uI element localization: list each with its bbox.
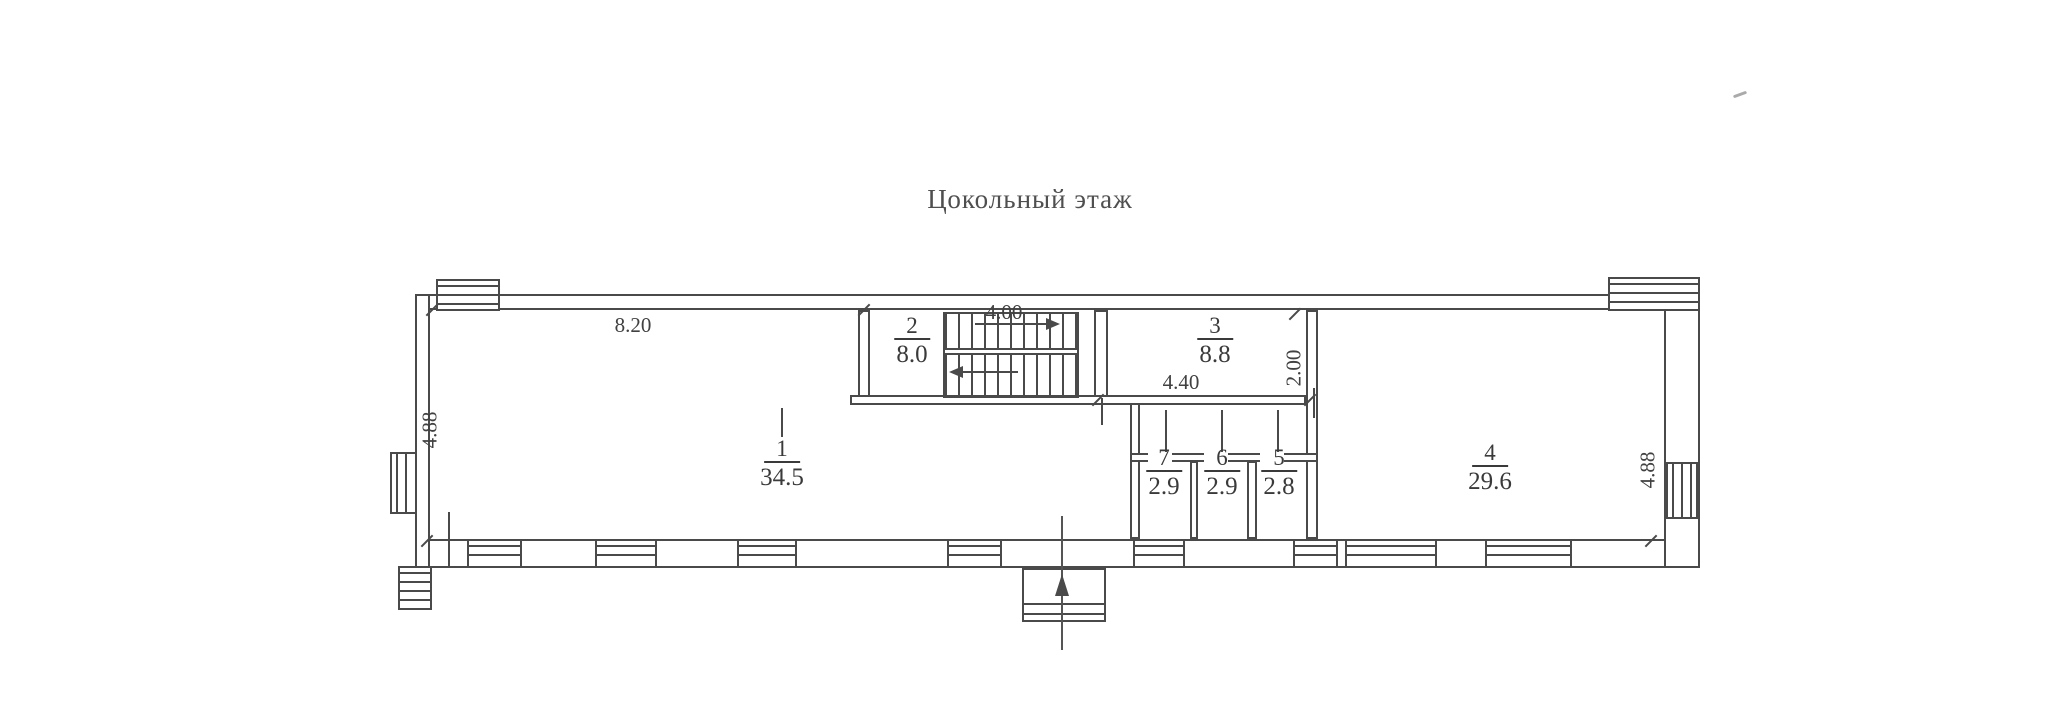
entrance-arrow-icon bbox=[1061, 516, 1063, 650]
dim-right-height: 4.88 bbox=[1636, 452, 1661, 489]
room-label-7: 7 2.9 bbox=[1146, 446, 1182, 500]
dim-stairs: 4.00 bbox=[986, 300, 1023, 325]
wall-room7-left bbox=[1130, 403, 1140, 539]
room-7-area: 2.9 bbox=[1146, 474, 1182, 500]
extension-line-bottom-left bbox=[448, 512, 450, 566]
room-1-area: 34.5 bbox=[760, 465, 804, 491]
window-bottom-8 bbox=[1485, 539, 1572, 568]
window-bottom-2 bbox=[595, 539, 657, 568]
room-3-number: 3 bbox=[1197, 314, 1233, 340]
room-4-area: 29.6 bbox=[1468, 469, 1512, 495]
wall-room6-room5 bbox=[1247, 461, 1257, 539]
dim-corridor: 4.40 bbox=[1163, 370, 1200, 395]
window-right-wall bbox=[1666, 462, 1698, 519]
wall-vestibule-left bbox=[858, 310, 870, 405]
wall-stairhall-right bbox=[1094, 310, 1108, 405]
dim-vestibule-depth: 2.00 bbox=[1282, 350, 1307, 387]
room-4-number: 4 bbox=[1472, 441, 1508, 467]
wall-room4-divider bbox=[1306, 310, 1318, 539]
room-label-4: 4 29.6 bbox=[1468, 441, 1512, 495]
room-2-area: 8.0 bbox=[894, 342, 930, 368]
porch-step-2 bbox=[1024, 613, 1104, 615]
room-6-area: 2.9 bbox=[1204, 474, 1240, 500]
room-label-6: 6 2.9 bbox=[1204, 446, 1240, 500]
scan-artifact bbox=[1733, 91, 1747, 99]
wall-room7-room6 bbox=[1190, 461, 1198, 539]
room-6-number: 6 bbox=[1204, 446, 1240, 472]
staircase-mid-landing-divider bbox=[943, 348, 1079, 355]
window-bottom-5 bbox=[1133, 539, 1185, 568]
extension-line-440-left bbox=[1101, 398, 1103, 425]
leader-room1 bbox=[781, 408, 783, 437]
porch-step-1 bbox=[1024, 603, 1104, 605]
window-bottom-4 bbox=[947, 539, 1002, 568]
exterior-wall-top bbox=[415, 294, 1700, 310]
stair-down-arrow-icon bbox=[962, 371, 1018, 373]
dim-top-left: 8.20 bbox=[615, 313, 652, 338]
room-label-5: 5 2.8 bbox=[1261, 446, 1297, 500]
scanned-floor-plan-sheet: Цокольный этаж 8.20 4.00 4 bbox=[0, 0, 2048, 720]
room-5-number: 5 bbox=[1261, 446, 1297, 472]
room-label-3: 3 8.8 bbox=[1197, 314, 1233, 368]
exterior-wall-right bbox=[1664, 294, 1700, 568]
window-bottom-7 bbox=[1345, 539, 1437, 568]
room-label-2: 2 8.0 bbox=[894, 314, 930, 368]
room-1-number: 1 bbox=[764, 437, 800, 463]
room-7-number: 7 bbox=[1146, 446, 1182, 472]
light-well-top-right bbox=[1608, 277, 1700, 311]
window-bottom-6 bbox=[1293, 539, 1338, 568]
room-2-number: 2 bbox=[894, 314, 930, 340]
dim-left-height: 4.88 bbox=[418, 412, 443, 449]
window-bottom-3 bbox=[737, 539, 797, 568]
light-well-bottom-left-corner bbox=[398, 566, 432, 610]
window-bottom-1 bbox=[467, 539, 522, 568]
room-3-area: 8.8 bbox=[1197, 342, 1233, 368]
light-well-top-left bbox=[436, 279, 500, 311]
page-title: Цокольный этаж bbox=[927, 184, 1132, 215]
room-label-1: 1 34.5 bbox=[760, 437, 804, 491]
window-left-wall bbox=[390, 452, 417, 514]
entrance-door-opening bbox=[1028, 541, 1098, 566]
room-5-area: 2.8 bbox=[1261, 474, 1297, 500]
